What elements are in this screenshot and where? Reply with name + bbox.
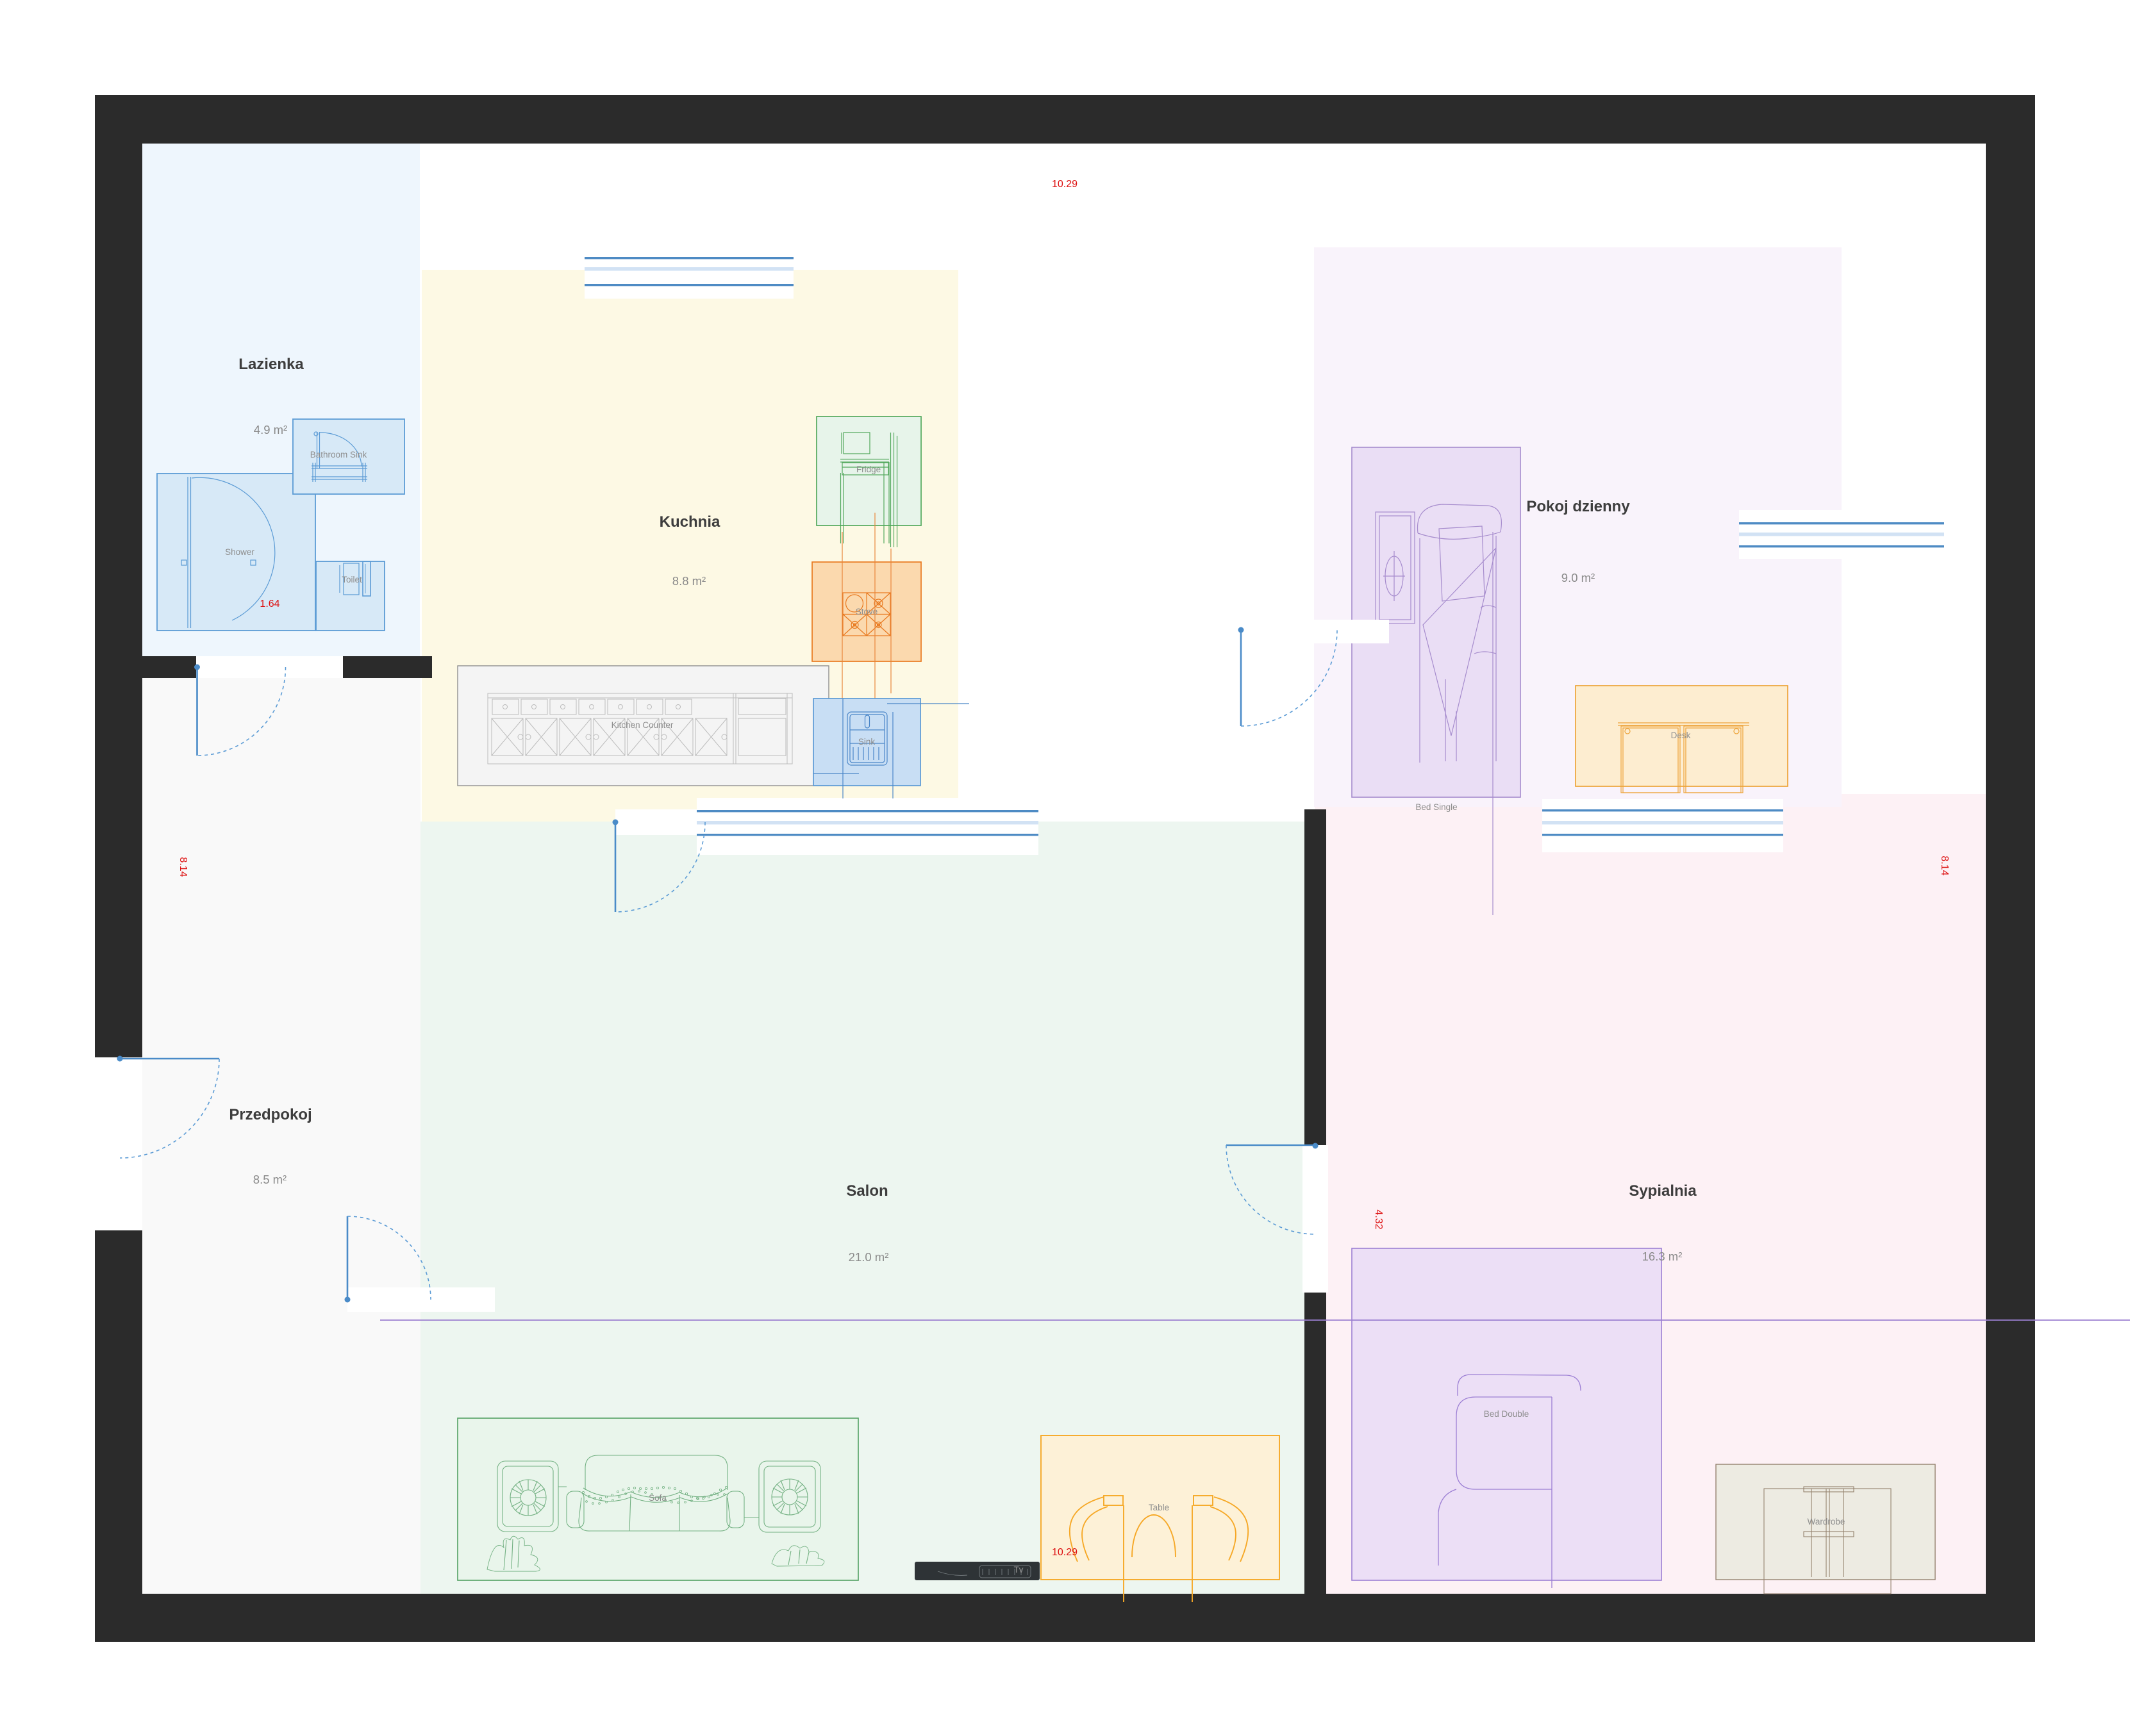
svg-text:8.14: 8.14 [178, 857, 188, 877]
svg-text:Sink: Sink [858, 737, 876, 747]
svg-text:8.5 m²: 8.5 m² [253, 1173, 287, 1186]
svg-text:Sofa: Sofa [649, 1493, 667, 1503]
svg-text:1.64: 1.64 [260, 599, 279, 609]
svg-text:10.29: 10.29 [1052, 179, 1077, 190]
svg-text:Salon: Salon [846, 1182, 888, 1200]
svg-text:16.3 m²: 16.3 m² [1642, 1250, 1683, 1263]
svg-text:Przedpokoj: Przedpokoj [229, 1106, 312, 1123]
svg-text:Bed Single: Bed Single [1415, 802, 1457, 812]
svg-text:4.32: 4.32 [1373, 1209, 1384, 1229]
svg-text:Bathroom Sink: Bathroom Sink [310, 450, 367, 459]
svg-text:Wardrobe: Wardrobe [1808, 1517, 1845, 1526]
svg-text:Fridge: Fridge [856, 465, 881, 474]
svg-text:Sypialnia: Sypialnia [1629, 1182, 1697, 1200]
svg-text:4.9 m²: 4.9 m² [254, 423, 287, 436]
svg-text:Shower: Shower [225, 547, 254, 557]
svg-text:Kitchen Counter: Kitchen Counter [612, 720, 674, 730]
svg-text:10.29: 10.29 [1052, 1547, 1077, 1558]
svg-text:8.14: 8.14 [1939, 856, 1950, 875]
svg-text:Toilet: Toilet [342, 575, 362, 584]
svg-text:Pokoj dzienny: Pokoj dzienny [1526, 498, 1630, 515]
svg-text:Kuchnia: Kuchnia [660, 513, 720, 531]
svg-text:Tv: Tv [1014, 1565, 1024, 1575]
svg-text:21.0 m²: 21.0 m² [849, 1250, 889, 1264]
svg-text:Stove: Stove [856, 607, 878, 616]
svg-text:8.8 m²: 8.8 m² [672, 574, 706, 588]
svg-text:9.0 m²: 9.0 m² [1561, 571, 1595, 584]
svg-text:Lazienka: Lazienka [238, 356, 304, 373]
svg-text:Table: Table [1149, 1503, 1169, 1512]
svg-text:Desk: Desk [1671, 731, 1691, 740]
svg-text:Bed Double: Bed Double [1484, 1409, 1529, 1419]
